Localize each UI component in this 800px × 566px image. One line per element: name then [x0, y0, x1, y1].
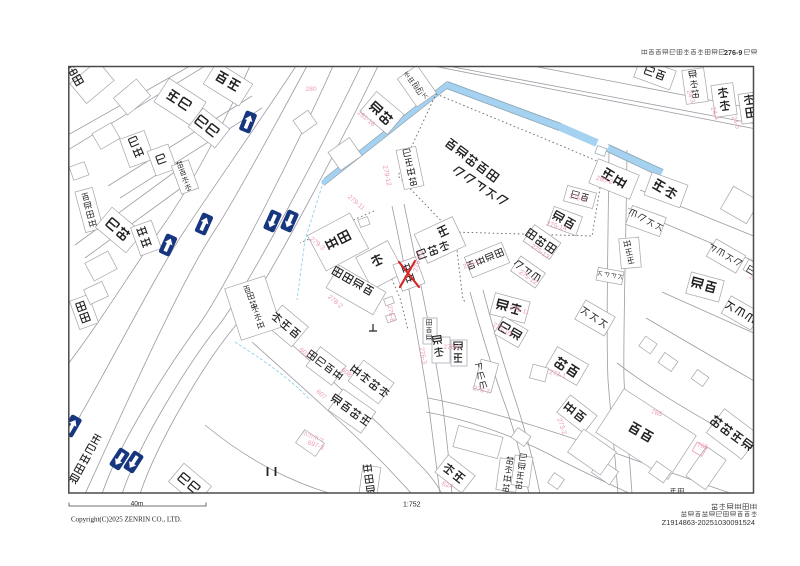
svg-text:1:752: 1:752	[403, 502, 421, 509]
svg-text:276-9: 276-9	[724, 48, 742, 57]
svg-text:Copyright(C)2025 ZENRIN CO., L: Copyright(C)2025 ZENRIN CO., LTD.	[71, 516, 182, 524]
svg-text:276-6: 276-6	[443, 344, 460, 351]
svg-text:280: 280	[305, 86, 316, 93]
svg-text:Z1914863-20251030091524: Z1914863-20251030091524	[662, 518, 755, 527]
svg-text:40m: 40m	[131, 501, 144, 508]
